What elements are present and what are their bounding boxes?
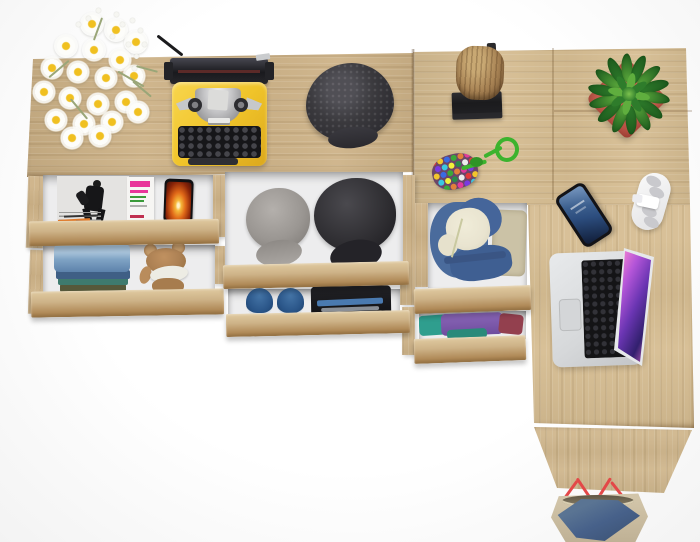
drawer-front-caps (223, 261, 409, 289)
magazine-pink (127, 177, 154, 224)
succulent-center (622, 87, 636, 101)
teddy-bear (138, 238, 192, 294)
denim-hoodie (430, 198, 528, 286)
pencil (64, 214, 98, 217)
laptop-trackpad (559, 299, 582, 332)
clothes-stripe (317, 298, 383, 307)
typewriter-spool (188, 98, 202, 112)
drawer-front-jeans (31, 288, 224, 317)
daisy-flower (66, 60, 90, 84)
succulent-plant (586, 44, 672, 140)
cap-black (314, 178, 396, 270)
desk-seam-vertical (552, 48, 554, 200)
drawer-front-shoes (226, 310, 410, 337)
typewriter-knob (265, 62, 274, 80)
magazine-title (130, 181, 150, 187)
babys-breath (134, 54, 139, 59)
babys-breath (142, 42, 147, 47)
seam-sideboard-desk (411, 49, 415, 177)
magazine-line (130, 215, 144, 218)
typewriter-cable (156, 34, 183, 56)
magazine-line (130, 190, 148, 193)
babys-breath (138, 28, 143, 33)
drawer-front-shirts (414, 335, 527, 364)
typewriter (168, 54, 272, 168)
daisy-flower (82, 38, 106, 62)
pompom-cord-knot (470, 157, 483, 167)
magazine-line (130, 200, 144, 202)
babys-breath (130, 18, 135, 23)
drawer-rail (415, 203, 428, 287)
typewriter-paper (207, 89, 228, 110)
babys-breath (126, 42, 131, 47)
babys-breath (86, 16, 91, 21)
babys-breath (110, 34, 115, 39)
daisy-flower (88, 124, 112, 148)
product-photo-stage (0, 0, 700, 542)
daisy-bouquet (26, 8, 160, 146)
drawer-front-magazines (29, 219, 219, 247)
babys-breath (132, 66, 137, 71)
phone-flame-screen (165, 182, 191, 221)
daisy-flower (32, 80, 56, 104)
typewriter-spool (234, 98, 248, 112)
headphones-clasp-tab (632, 194, 643, 203)
typewriter-keyboard (178, 126, 261, 158)
magazine-line (130, 196, 146, 198)
babys-breath (120, 22, 125, 27)
sneaker (246, 288, 273, 316)
daisy-flower (60, 126, 84, 150)
daisy-flower (54, 34, 78, 58)
babys-breath (76, 22, 81, 27)
phone-flame (163, 179, 194, 224)
typewriter-lever (256, 53, 271, 61)
cap-gray (246, 188, 310, 266)
log-decor (455, 45, 505, 101)
jeans-top (54, 244, 130, 272)
daisy-flower (126, 100, 150, 124)
magazine-line (130, 205, 147, 207)
typewriter-ribbon (178, 70, 260, 73)
typewriter-spacebar (188, 158, 238, 165)
babys-breath (114, 12, 119, 17)
daisy-flower (94, 66, 118, 90)
smartphone-ui-line (575, 206, 586, 214)
babys-breath (96, 8, 101, 13)
folded-jeans (54, 244, 132, 292)
shirt-maroon (498, 313, 524, 335)
typewriter-label (208, 118, 230, 125)
flat-cap (306, 63, 394, 148)
drawer-front-hoodie (414, 285, 532, 314)
typewriter-knob (164, 62, 173, 80)
